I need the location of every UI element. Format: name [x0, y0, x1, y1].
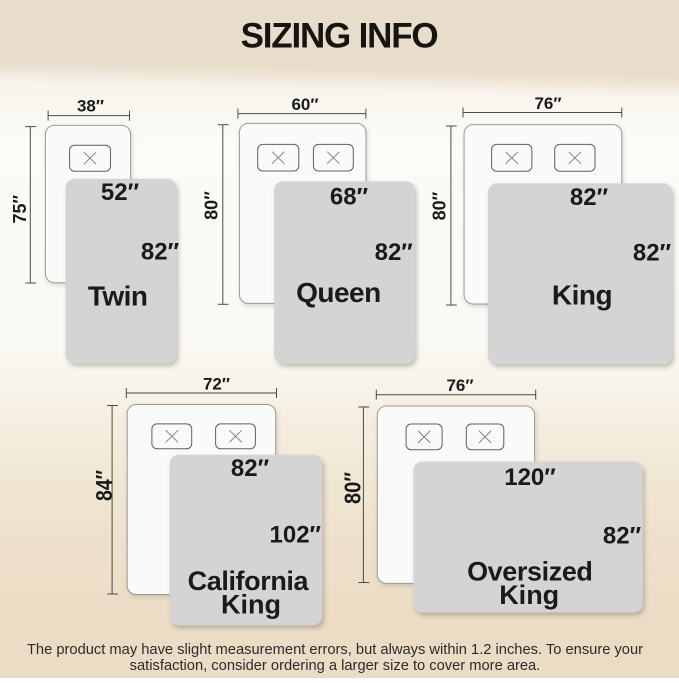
svg-text:SIZING INFO: SIZING INFO — [241, 17, 438, 56]
svg-text:satisfaction, consider orderin: satisfaction, consider ordering a larger… — [130, 658, 541, 674]
svg-text:80″: 80″ — [429, 191, 449, 220]
svg-text:76″: 76″ — [534, 94, 561, 113]
svg-text:102″: 102″ — [270, 522, 322, 549]
svg-text:King: King — [499, 580, 559, 610]
svg-text:Twin: Twin — [88, 281, 148, 312]
svg-text:68″: 68″ — [330, 184, 369, 211]
svg-text:52″: 52″ — [101, 179, 140, 206]
svg-text:80″: 80″ — [340, 472, 366, 504]
svg-text:82″: 82″ — [633, 240, 672, 267]
svg-text:84″: 84″ — [91, 470, 117, 501]
svg-text:82″: 82″ — [603, 523, 642, 550]
svg-text:38″: 38″ — [77, 97, 104, 116]
svg-text:82″: 82″ — [231, 455, 270, 482]
svg-text:72″: 72″ — [203, 375, 230, 394]
svg-text:60″: 60″ — [291, 95, 318, 114]
svg-text:Queen: Queen — [296, 277, 381, 308]
svg-text:King: King — [552, 280, 612, 311]
svg-text:The product may have slight me: The product may have slight measurement … — [27, 642, 643, 658]
svg-text:120″: 120″ — [504, 464, 556, 491]
svg-text:82″: 82″ — [570, 184, 609, 211]
svg-text:82″: 82″ — [375, 239, 414, 266]
svg-text:75″: 75″ — [10, 195, 30, 224]
svg-text:76″: 76″ — [446, 376, 473, 395]
svg-text:80″: 80″ — [202, 191, 222, 220]
svg-text:82″: 82″ — [141, 239, 180, 266]
svg-text:King: King — [221, 589, 281, 619]
